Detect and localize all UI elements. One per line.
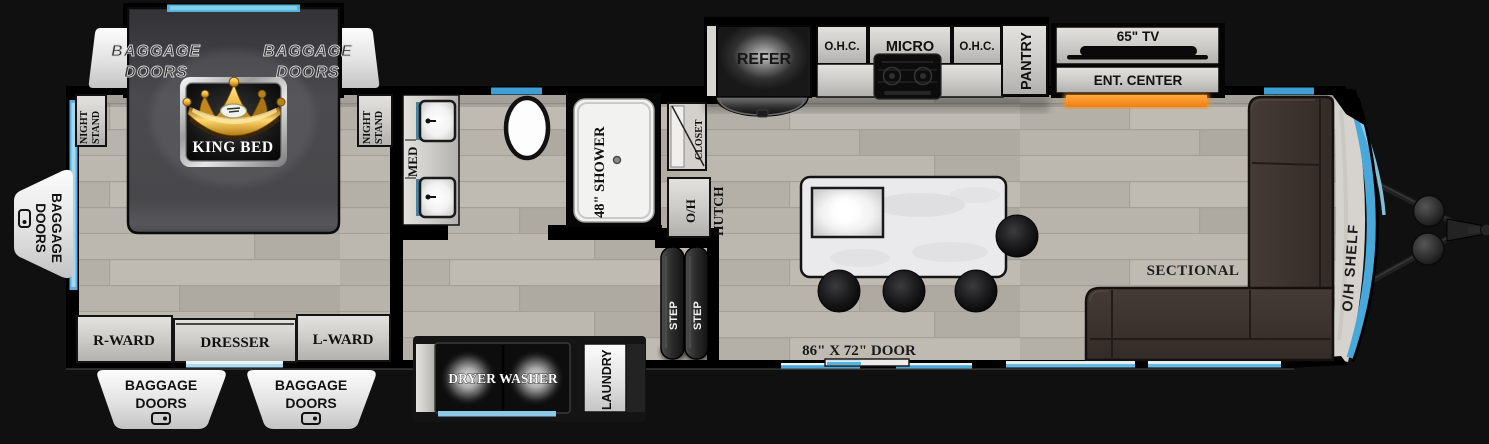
svg-text:STAND: STAND [91, 111, 102, 144]
svg-text:STAND: STAND [374, 111, 385, 144]
svg-text:O.H.C.: O.H.C. [824, 41, 859, 53]
svg-text:LAUNDRY: LAUNDRY [600, 349, 614, 410]
svg-text:ENT. CENTER: ENT. CENTER [1094, 73, 1183, 88]
svg-text:DOORS: DOORS [135, 395, 186, 411]
svg-text:NIGHT: NIGHT [362, 110, 373, 144]
svg-text:PANTRY: PANTRY [1019, 32, 1035, 90]
svg-text:KING BED: KING BED [192, 139, 273, 156]
svg-text:STEP: STEP [668, 301, 680, 330]
svg-text:MED: MED [405, 147, 420, 177]
svg-text:DRESSER: DRESSER [200, 335, 269, 351]
svg-text:65" TV: 65" TV [1117, 29, 1159, 44]
svg-text:48" SHOWER: 48" SHOWER [592, 126, 608, 218]
svg-text:BAGGAGE: BAGGAGE [263, 43, 353, 60]
svg-text:HUTCH: HUTCH [711, 186, 726, 236]
svg-text:BAGGAGE: BAGGAGE [275, 377, 347, 393]
svg-text:O/H: O/H [683, 199, 698, 223]
svg-text:DOORS: DOORS [33, 203, 48, 253]
svg-text:DOORS: DOORS [276, 64, 340, 81]
svg-text:DRYER WASHER: DRYER WASHER [448, 371, 557, 386]
svg-text:SECTIONAL: SECTIONAL [1147, 263, 1240, 279]
svg-text:BAGGAGE: BAGGAGE [125, 377, 197, 393]
svg-text:REFER: REFER [737, 51, 792, 68]
svg-text:BAGGAGE: BAGGAGE [111, 43, 201, 60]
svg-text:NIGHT: NIGHT [79, 110, 90, 144]
svg-text:STEP: STEP [692, 301, 704, 330]
svg-text:MICRO: MICRO [886, 39, 934, 55]
svg-text:L-WARD: L-WARD [313, 332, 374, 348]
svg-text:86" X 72" DOOR: 86" X 72" DOOR [802, 343, 916, 359]
svg-text:DOORS: DOORS [124, 64, 188, 81]
svg-text:R-WARD: R-WARD [93, 333, 155, 349]
svg-text:BAGGAGE: BAGGAGE [49, 193, 64, 263]
svg-text:O.H.C.: O.H.C. [959, 41, 994, 53]
svg-text:DOORS: DOORS [285, 395, 336, 411]
svg-text:CLOSET: CLOSET [694, 119, 705, 160]
